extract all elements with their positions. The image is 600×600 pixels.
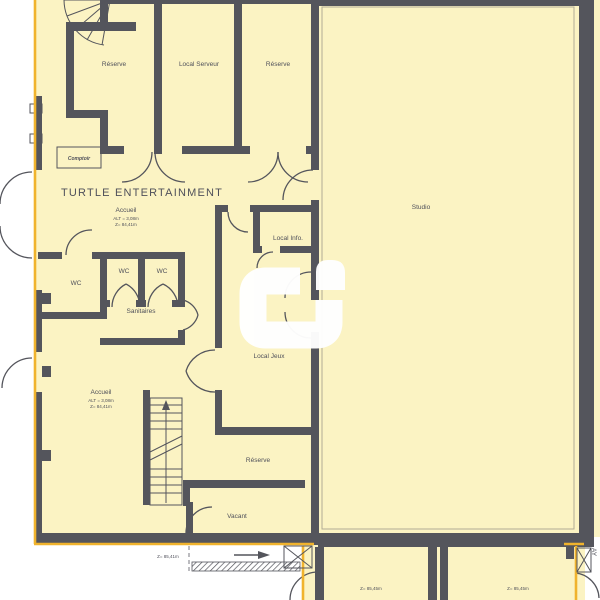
room-label-accueil-upper: Accueil <box>116 207 138 214</box>
floorplan-page: TURTLE ENTERTAINMENT Réserve Local Serve… <box>0 0 600 600</box>
corridor-level-label: Z= 85,41m <box>157 554 179 559</box>
floorplan-drawing: TURTLE ENTERTAINMENT Réserve Local Serve… <box>0 0 600 600</box>
edge-rotated-text: AY <box>590 548 597 557</box>
accueil-upper-alt: ALT = 3,08m <box>113 216 139 221</box>
room-label-local-serveur: Local Serveur <box>179 61 220 68</box>
room-label-accueil-lower: Accueil <box>91 389 113 396</box>
room-label-reserve-top-right: Réserve <box>266 61 291 68</box>
lower-room-left-level: Z= 85,45m <box>360 586 382 591</box>
room-label-wc-middle: WC <box>119 268 130 275</box>
plan-title: TURTLE ENTERTAINMENT <box>61 187 223 199</box>
room-label-local-jeux: Local Jeux <box>253 353 285 360</box>
room-label-sanitaires: Sanitaires <box>127 308 157 315</box>
room-label-comptoir: Comptoir <box>68 156 91 162</box>
room-label-reserve-middle: Réserve <box>246 457 271 464</box>
room-label-wc-left: WC <box>71 280 82 287</box>
room-label-wc-right: WC <box>157 268 168 275</box>
accueil-lower-level: Z= 84,41m <box>90 404 112 409</box>
room-label-vacant: Vacant <box>227 513 247 520</box>
room-label-reserve-top-left: Réserve <box>102 61 127 68</box>
accueil-upper-level: Z= 84,41m <box>115 222 137 227</box>
room-label-local-info: Local Info. <box>273 235 303 242</box>
lower-room-right-level: Z= 85,45m <box>507 586 529 591</box>
accueil-lower-alt: ALT = 3,08m <box>88 398 114 403</box>
room-label-studio: Studio <box>412 204 431 211</box>
